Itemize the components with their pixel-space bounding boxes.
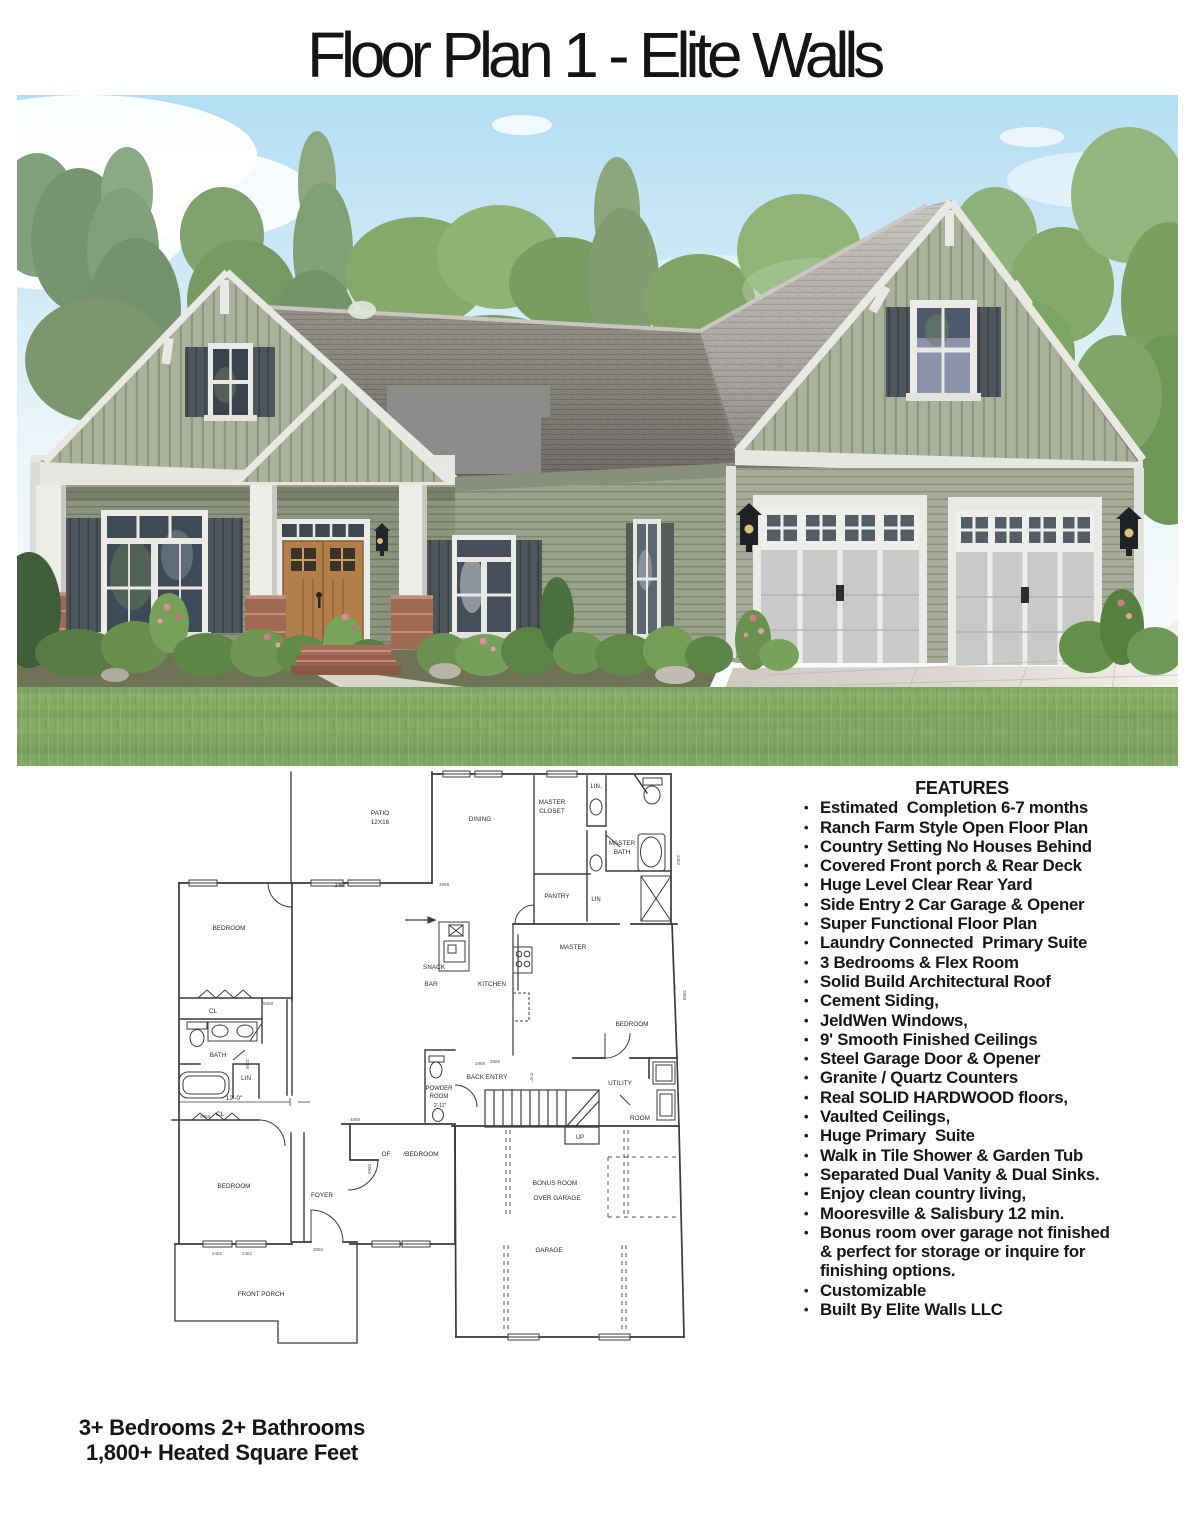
svg-text:MASTER: MASTER bbox=[609, 840, 636, 847]
svg-text:BEDROOM: BEDROOM bbox=[615, 1021, 648, 1028]
svg-text:2452: 2452 bbox=[334, 883, 345, 889]
svg-text:3068: 3068 bbox=[313, 1247, 324, 1252]
svg-text:CL: CL bbox=[216, 1111, 225, 1118]
svg-text:12'-0": 12'-0" bbox=[226, 1095, 243, 1102]
svg-text:PATIO: PATIO bbox=[371, 810, 389, 817]
svg-text:5068: 5068 bbox=[200, 1114, 211, 1119]
svg-text:BATH: BATH bbox=[210, 1052, 227, 1059]
svg-text:2452: 2452 bbox=[676, 855, 681, 866]
svg-text:2868: 2868 bbox=[475, 1061, 486, 1066]
svg-text:3'-6": 3'-6" bbox=[529, 1073, 534, 1082]
svg-text:2868: 2868 bbox=[439, 882, 450, 887]
svg-text:CL: CL bbox=[209, 1008, 218, 1015]
svg-text:ROOM: ROOM bbox=[430, 1094, 449, 1100]
svg-text:FRONT PORCH: FRONT PORCH bbox=[238, 1291, 285, 1298]
svg-text:BEDROOM: BEDROOM bbox=[217, 1183, 250, 1190]
svg-text:OF: OF bbox=[381, 1151, 390, 1158]
svg-text:5068: 5068 bbox=[263, 1001, 274, 1006]
svg-text:KITCHEN: KITCHEN bbox=[478, 981, 506, 988]
svg-text:2868: 2868 bbox=[682, 990, 687, 1001]
svg-text:2452: 2452 bbox=[242, 1251, 253, 1256]
svg-text:BEDROOM: BEDROOM bbox=[212, 925, 245, 932]
svg-text:BAR: BAR bbox=[424, 981, 438, 988]
svg-text:LIN.: LIN. bbox=[590, 784, 601, 790]
svg-text:2'-11": 2'-11" bbox=[434, 1103, 447, 1109]
svg-text:FOYER: FOYER bbox=[311, 1192, 333, 1199]
svg-text:CLOSET: CLOSET bbox=[539, 808, 565, 815]
svg-text:UTILITY: UTILITY bbox=[608, 1080, 633, 1087]
svg-text:12X16: 12X16 bbox=[371, 819, 390, 826]
svg-text:OVER GARAGE: OVER GARAGE bbox=[533, 1195, 580, 1202]
svg-text:UP: UP bbox=[576, 1135, 584, 1141]
svg-text:2868: 2868 bbox=[367, 1164, 372, 1175]
svg-text:SNACK: SNACK bbox=[423, 964, 446, 971]
svg-text:ROOM: ROOM bbox=[630, 1115, 650, 1122]
svg-text:PANTRY: PANTRY bbox=[544, 893, 570, 900]
svg-text:POWDER: POWDER bbox=[426, 1086, 454, 1092]
svg-text:2868: 2868 bbox=[490, 1059, 501, 1064]
svg-text:DINING: DINING bbox=[469, 816, 491, 823]
svg-text:LIN: LIN bbox=[591, 897, 600, 903]
svg-text:/BEDROOM: /BEDROOM bbox=[403, 1151, 438, 1158]
svg-text:BACK ENTRY: BACK ENTRY bbox=[467, 1074, 508, 1081]
svg-text:MASTER: MASTER bbox=[539, 799, 566, 806]
svg-text:MASTER: MASTER bbox=[560, 944, 587, 951]
svg-text:GARAGE: GARAGE bbox=[535, 1247, 562, 1254]
svg-text:4068: 4068 bbox=[350, 1117, 361, 1122]
svg-text:BATH: BATH bbox=[614, 849, 631, 856]
svg-text:LIN: LIN bbox=[241, 1075, 251, 1082]
svg-text:BONUS ROOM: BONUS ROOM bbox=[533, 1180, 577, 1187]
svg-text:2452: 2452 bbox=[212, 1251, 223, 1256]
svg-text:2068: 2068 bbox=[245, 1059, 250, 1070]
